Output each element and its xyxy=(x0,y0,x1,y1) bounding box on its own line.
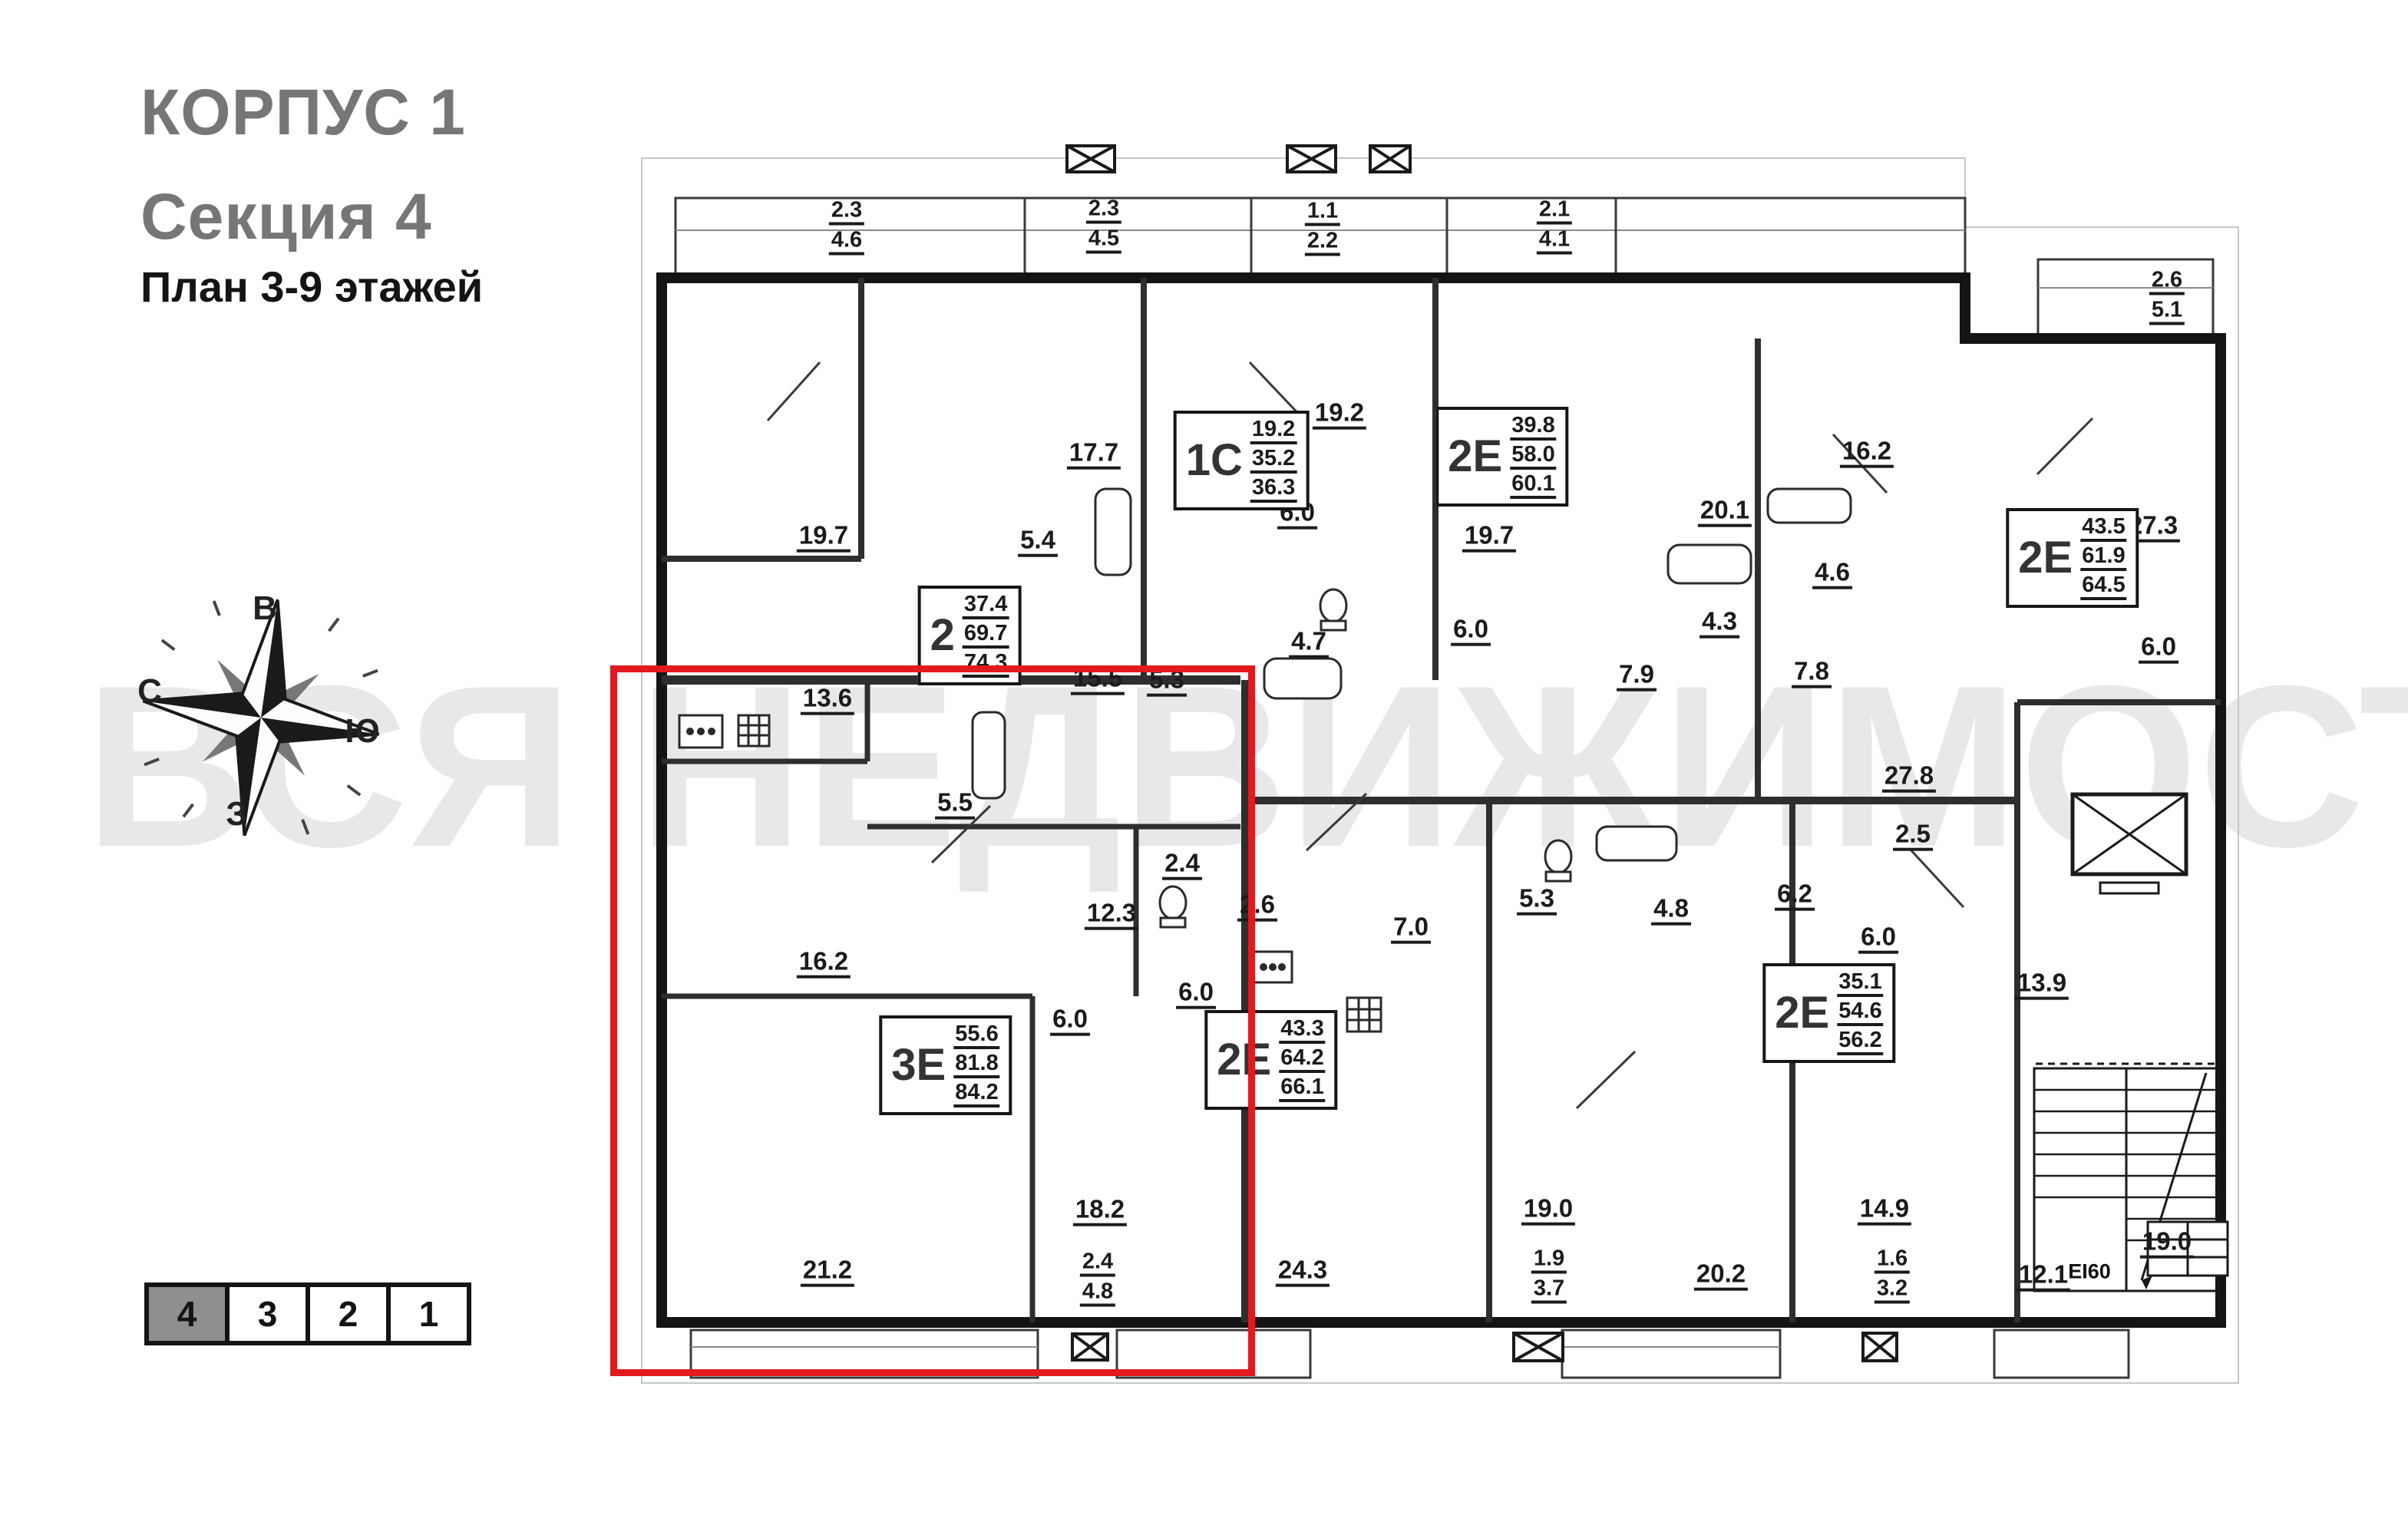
apartment-living-area: 37.4 xyxy=(963,593,1009,619)
apartment-label[interactable]: 2Е 35.1 54.6 56.2 xyxy=(1762,963,1895,1063)
room-area-label: 19.2 xyxy=(1313,400,1366,430)
loggia-area-full: 3.2 xyxy=(1875,1278,1910,1304)
loggia-area-reduced: 2.6 xyxy=(2149,269,2185,295)
apartment-type: 2Е xyxy=(2018,536,2073,580)
room-area-label: 27.8 xyxy=(1882,763,1936,793)
loggia-area-reduced: 2.3 xyxy=(829,200,864,226)
apartment-label[interactable]: 2Е 43.5 61.9 64.5 xyxy=(2006,508,2139,608)
apartment-type: 1С xyxy=(1186,438,1243,483)
room-area-label: 13.9 xyxy=(2015,970,2069,1000)
apartment-type: 2Е xyxy=(1448,434,1502,479)
section-selector-cell[interactable]: 2 xyxy=(306,1282,391,1345)
apartment-total-area: 56.2 xyxy=(1837,1029,1883,1055)
apartment-area: 58.0 xyxy=(1510,444,1556,470)
apartment-area: 69.7 xyxy=(963,622,1009,649)
apartment-areas: 43.3 64.2 66.1 xyxy=(1279,1018,1325,1102)
room-area-label: 14.9 xyxy=(1858,1196,1911,1226)
apartment-living-area: 39.8 xyxy=(1510,414,1556,441)
loggia-area-label: 1.1 2.2 xyxy=(1305,200,1340,256)
room-area-label: 4.8 xyxy=(1651,896,1691,926)
apartment-area: 64.2 xyxy=(1279,1047,1325,1073)
loggia-area-label: 2.3 4.5 xyxy=(1086,198,1121,254)
room-area-label: 7.0 xyxy=(1391,914,1431,944)
loggia-area-full: 2.2 xyxy=(1305,230,1340,256)
apartment-living-area: 43.5 xyxy=(2080,516,2126,542)
section-selector-cell[interactable]: 4 xyxy=(144,1282,230,1345)
room-area-label: 6.2 xyxy=(1775,881,1815,911)
room-area-label: 19.0 xyxy=(1521,1196,1575,1226)
room-area-label: 7.8 xyxy=(1792,659,1832,688)
room-area-label: 4.3 xyxy=(1699,609,1739,639)
apartment-total-area: 60.1 xyxy=(1510,473,1556,499)
loggia-area-reduced: 1.6 xyxy=(1875,1248,1910,1274)
loggia-area-label: 2.6 5.1 xyxy=(2149,269,2185,325)
loggia-area-full: 3.7 xyxy=(1531,1278,1567,1304)
loggia-area-reduced: 2.1 xyxy=(1537,199,1572,225)
apartment-type: 2Е xyxy=(1775,991,1829,1035)
building-title: КОРПУС 1 xyxy=(140,80,483,144)
loggia-area-reduced: 1.1 xyxy=(1305,200,1340,226)
loggia-area-reduced: 1.9 xyxy=(1531,1248,1567,1274)
apartment-areas: 35.1 54.6 56.2 xyxy=(1837,971,1883,1055)
room-area-label: 5.4 xyxy=(1018,527,1058,557)
loggia-area-label: 2.1 4.1 xyxy=(1537,199,1572,255)
apartment-areas: 43.5 61.9 64.5 xyxy=(2080,516,2126,600)
loggia-area-label: 1.6 3.2 xyxy=(1875,1248,1910,1304)
apartment-total-area: 64.5 xyxy=(2080,574,2126,600)
fire-rating-label: ЕІ60 xyxy=(2068,1260,2111,1284)
apartment-areas: 19.2 35.2 36.3 xyxy=(1250,418,1296,503)
apartment-area: 61.9 xyxy=(2080,545,2126,571)
room-area-label: 24.3 xyxy=(1276,1257,1330,1287)
room-area-label: 20.2 xyxy=(1694,1261,1748,1291)
loggia-area-full: 4.6 xyxy=(829,229,864,256)
apartment-label[interactable]: 2Е 39.8 58.0 60.1 xyxy=(1435,407,1568,507)
room-area-label: 6.0 xyxy=(1858,924,1898,954)
room-area-label: 2.5 xyxy=(1893,821,1933,851)
section-selector-cell[interactable]: 1 xyxy=(386,1282,471,1345)
room-area-label: 16.2 xyxy=(1840,438,1894,468)
loggia-area-reduced: 2.3 xyxy=(1086,198,1121,224)
plan-subtitle: План 3-9 этажей xyxy=(140,266,483,309)
section-title: Секция 4 xyxy=(140,184,483,249)
apartment-area: 35.2 xyxy=(1250,447,1296,474)
room-area-label: 12.1 xyxy=(2017,1262,2070,1292)
loggia-area-full: 4.1 xyxy=(1537,229,1572,255)
apartment-areas: 39.8 58.0 60.1 xyxy=(1510,414,1556,499)
apartment-total-area: 36.3 xyxy=(1250,477,1296,503)
apartment-area: 54.6 xyxy=(1837,1000,1883,1026)
apartment-living-area: 19.2 xyxy=(1250,418,1296,444)
room-area-label: 6.0 xyxy=(1451,616,1491,646)
selected-apartment-highlight[interactable] xyxy=(610,665,1255,1376)
section-selector-cell[interactable]: 3 xyxy=(225,1282,310,1345)
room-area-label: 19.0 xyxy=(2140,1229,2194,1259)
apartment-living-area: 43.3 xyxy=(1279,1018,1325,1044)
loggia-area-full: 5.1 xyxy=(2149,299,2185,325)
loggia-area-full: 4.5 xyxy=(1086,228,1121,254)
room-area-label: 7.9 xyxy=(1617,662,1657,692)
room-area-label: 19.7 xyxy=(1462,523,1516,553)
title-block: КОРПУС 1 Секция 4 План 3-9 этажей xyxy=(140,80,483,309)
room-area-label: 20.1 xyxy=(1698,497,1752,527)
room-area-label: 4.6 xyxy=(1812,560,1852,589)
apartment-type: 2 xyxy=(930,613,955,658)
room-area-label: 17.7 xyxy=(1067,440,1121,470)
room-area-label: 4.7 xyxy=(1289,629,1329,659)
loggia-area-label: 2.3 4.6 xyxy=(829,200,864,256)
room-area-label: 5.3 xyxy=(1517,886,1557,916)
room-area-label: 6.0 xyxy=(2139,634,2178,664)
floor-plan-page: ВСЯ НЕДВИЖИМОСТЬ xyxy=(0,0,2408,1535)
room-area-label: 19.7 xyxy=(797,523,851,553)
apartment-label[interactable]: 1С 19.2 35.2 36.3 xyxy=(1174,411,1310,510)
apartment-living-area: 35.1 xyxy=(1837,971,1883,997)
loggia-area-label: 1.9 3.7 xyxy=(1531,1248,1567,1304)
section-selector: 4321 xyxy=(144,1282,471,1345)
apartment-total-area: 66.1 xyxy=(1279,1076,1325,1102)
